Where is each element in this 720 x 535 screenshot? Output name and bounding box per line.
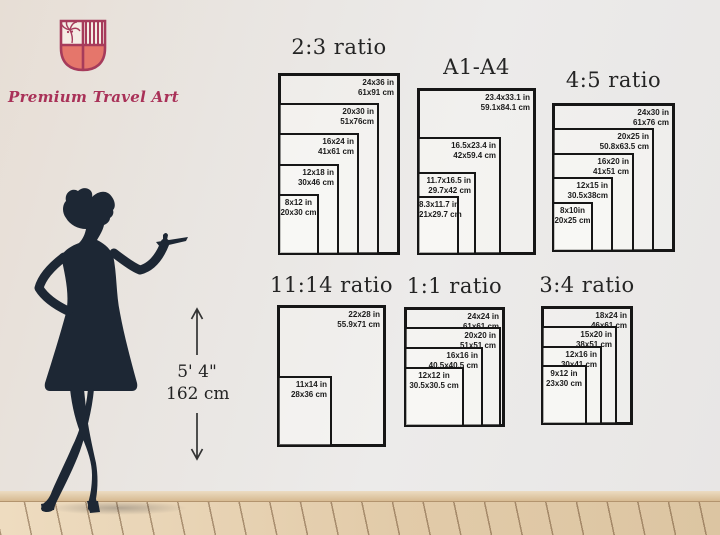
chart-title: 2:3 ratio	[291, 35, 386, 59]
size-label: 16x20 in41x51 cm	[556, 157, 629, 176]
size-label: 8x10in20x25 cm	[554, 206, 591, 225]
size-label: 12x18 in30x46 cm	[282, 168, 334, 187]
size-label: 16x24 in41x61 cm	[282, 137, 354, 156]
size-chart-3-4-ratio: 3:4 ratio18x24 in46x61 cm15x20 in38x51 c…	[541, 306, 633, 425]
size-label: 16.5x23.4 in42x59.4 cm	[421, 141, 496, 160]
size-chart-11-14-ratio: 11:14 ratio22x28 in55.9x71 cm11x14 in28x…	[277, 305, 386, 447]
size-rect: 12x12 in30.5x30.5 cm	[404, 367, 464, 427]
size-charts: 2:3 ratio24x36 in61x91 cm20x30 in51x76cm…	[0, 0, 720, 535]
size-chart-1-1-ratio: 1:1 ratio24x24 in61x61 cm20x20 in51x51 c…	[404, 307, 505, 427]
size-rect: 9x12 in23x30 cm	[541, 365, 587, 425]
size-label: 9x12 in23x30 cm	[543, 369, 585, 388]
size-rect: 11x14 in28x36 cm	[277, 376, 332, 447]
chart-title: 4:5 ratio	[566, 68, 661, 92]
size-label: 12x12 in30.5x30.5 cm	[406, 371, 462, 390]
size-label: 24x30 in61x76 cm	[557, 108, 669, 127]
size-chart-a1-a4: A1-A423.4x33.1 in59.1x84.1 cm16.5x23.4 i…	[417, 88, 536, 255]
size-label: 11x14 in28x36 cm	[281, 380, 327, 399]
size-label: 8x12 in20x30 cm	[280, 198, 317, 217]
size-rect: 8x12 in20x30 cm	[278, 194, 319, 255]
size-label: 24x36 in61x91 cm	[283, 78, 394, 97]
size-label: 12x15 in30.5x38cm	[556, 181, 608, 200]
size-label: 11.7x16.5 in29.7x42 cm	[421, 176, 471, 195]
size-chart-2-3-ratio: 2:3 ratio24x36 in61x91 cm20x30 in51x76cm…	[278, 73, 400, 255]
chart-title: A1-A4	[443, 55, 510, 79]
size-label: 23.4x33.1 in59.1x84.1 cm	[422, 93, 530, 112]
size-chart-4-5-ratio: 4:5 ratio24x30 in61x76 cm20x25 in50.8x63…	[552, 103, 675, 252]
size-rect: 8.3x11.7 in21x29.7 cm	[417, 196, 459, 255]
size-label: 8.3x11.7 in21x29.7 cm	[419, 200, 457, 219]
chart-title: 3:4 ratio	[539, 273, 634, 297]
size-label: 20x25 in50.8x63.5 cm	[556, 132, 649, 151]
size-rect: 8x10in20x25 cm	[552, 202, 593, 252]
chart-title: 1:1 ratio	[407, 274, 502, 298]
size-label: 20x30 in51x76cm	[282, 107, 374, 126]
chart-title: 11:14 ratio	[270, 273, 393, 297]
size-guide-scene: Premium Travel Art 5' 4"	[0, 0, 720, 535]
size-label: 22x28 in55.9x71 cm	[282, 310, 380, 329]
